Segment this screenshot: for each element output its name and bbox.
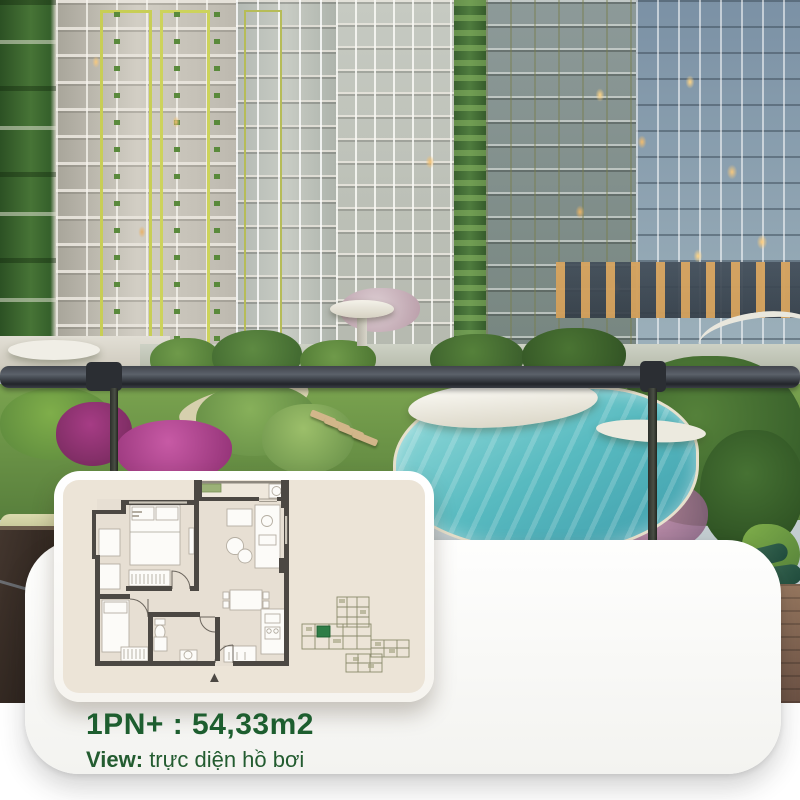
pavilion-stem bbox=[357, 314, 367, 346]
view-value: trực diện hồ bơi bbox=[149, 747, 304, 772]
unit-caption: 1PN+ : 54,33m2 View: trực diện hồ bơi bbox=[86, 708, 314, 773]
railing-post bbox=[110, 388, 118, 472]
view-label: View: bbox=[86, 747, 143, 772]
unit-title: 1PN+ : 54,33m2 bbox=[86, 708, 314, 742]
floor-plan-drawing bbox=[63, 480, 425, 693]
podium-lit-base bbox=[556, 262, 800, 318]
railing-post bbox=[648, 388, 657, 546]
view-line: View: trực diện hồ bơi bbox=[86, 747, 314, 773]
highlighted-unit bbox=[317, 626, 330, 637]
unit-plan bbox=[92, 480, 289, 666]
pavilion-roof bbox=[330, 300, 394, 318]
terrace-canopy bbox=[8, 340, 100, 360]
handrail-joint bbox=[86, 362, 122, 391]
entrance-arrow-icon: ▲ bbox=[207, 669, 222, 686]
real-estate-banner: ở vị nghiê bbox=[0, 0, 800, 800]
mushroom-pavilion bbox=[330, 296, 394, 352]
floor-plan-panel bbox=[63, 480, 425, 693]
key-plan bbox=[302, 597, 409, 672]
